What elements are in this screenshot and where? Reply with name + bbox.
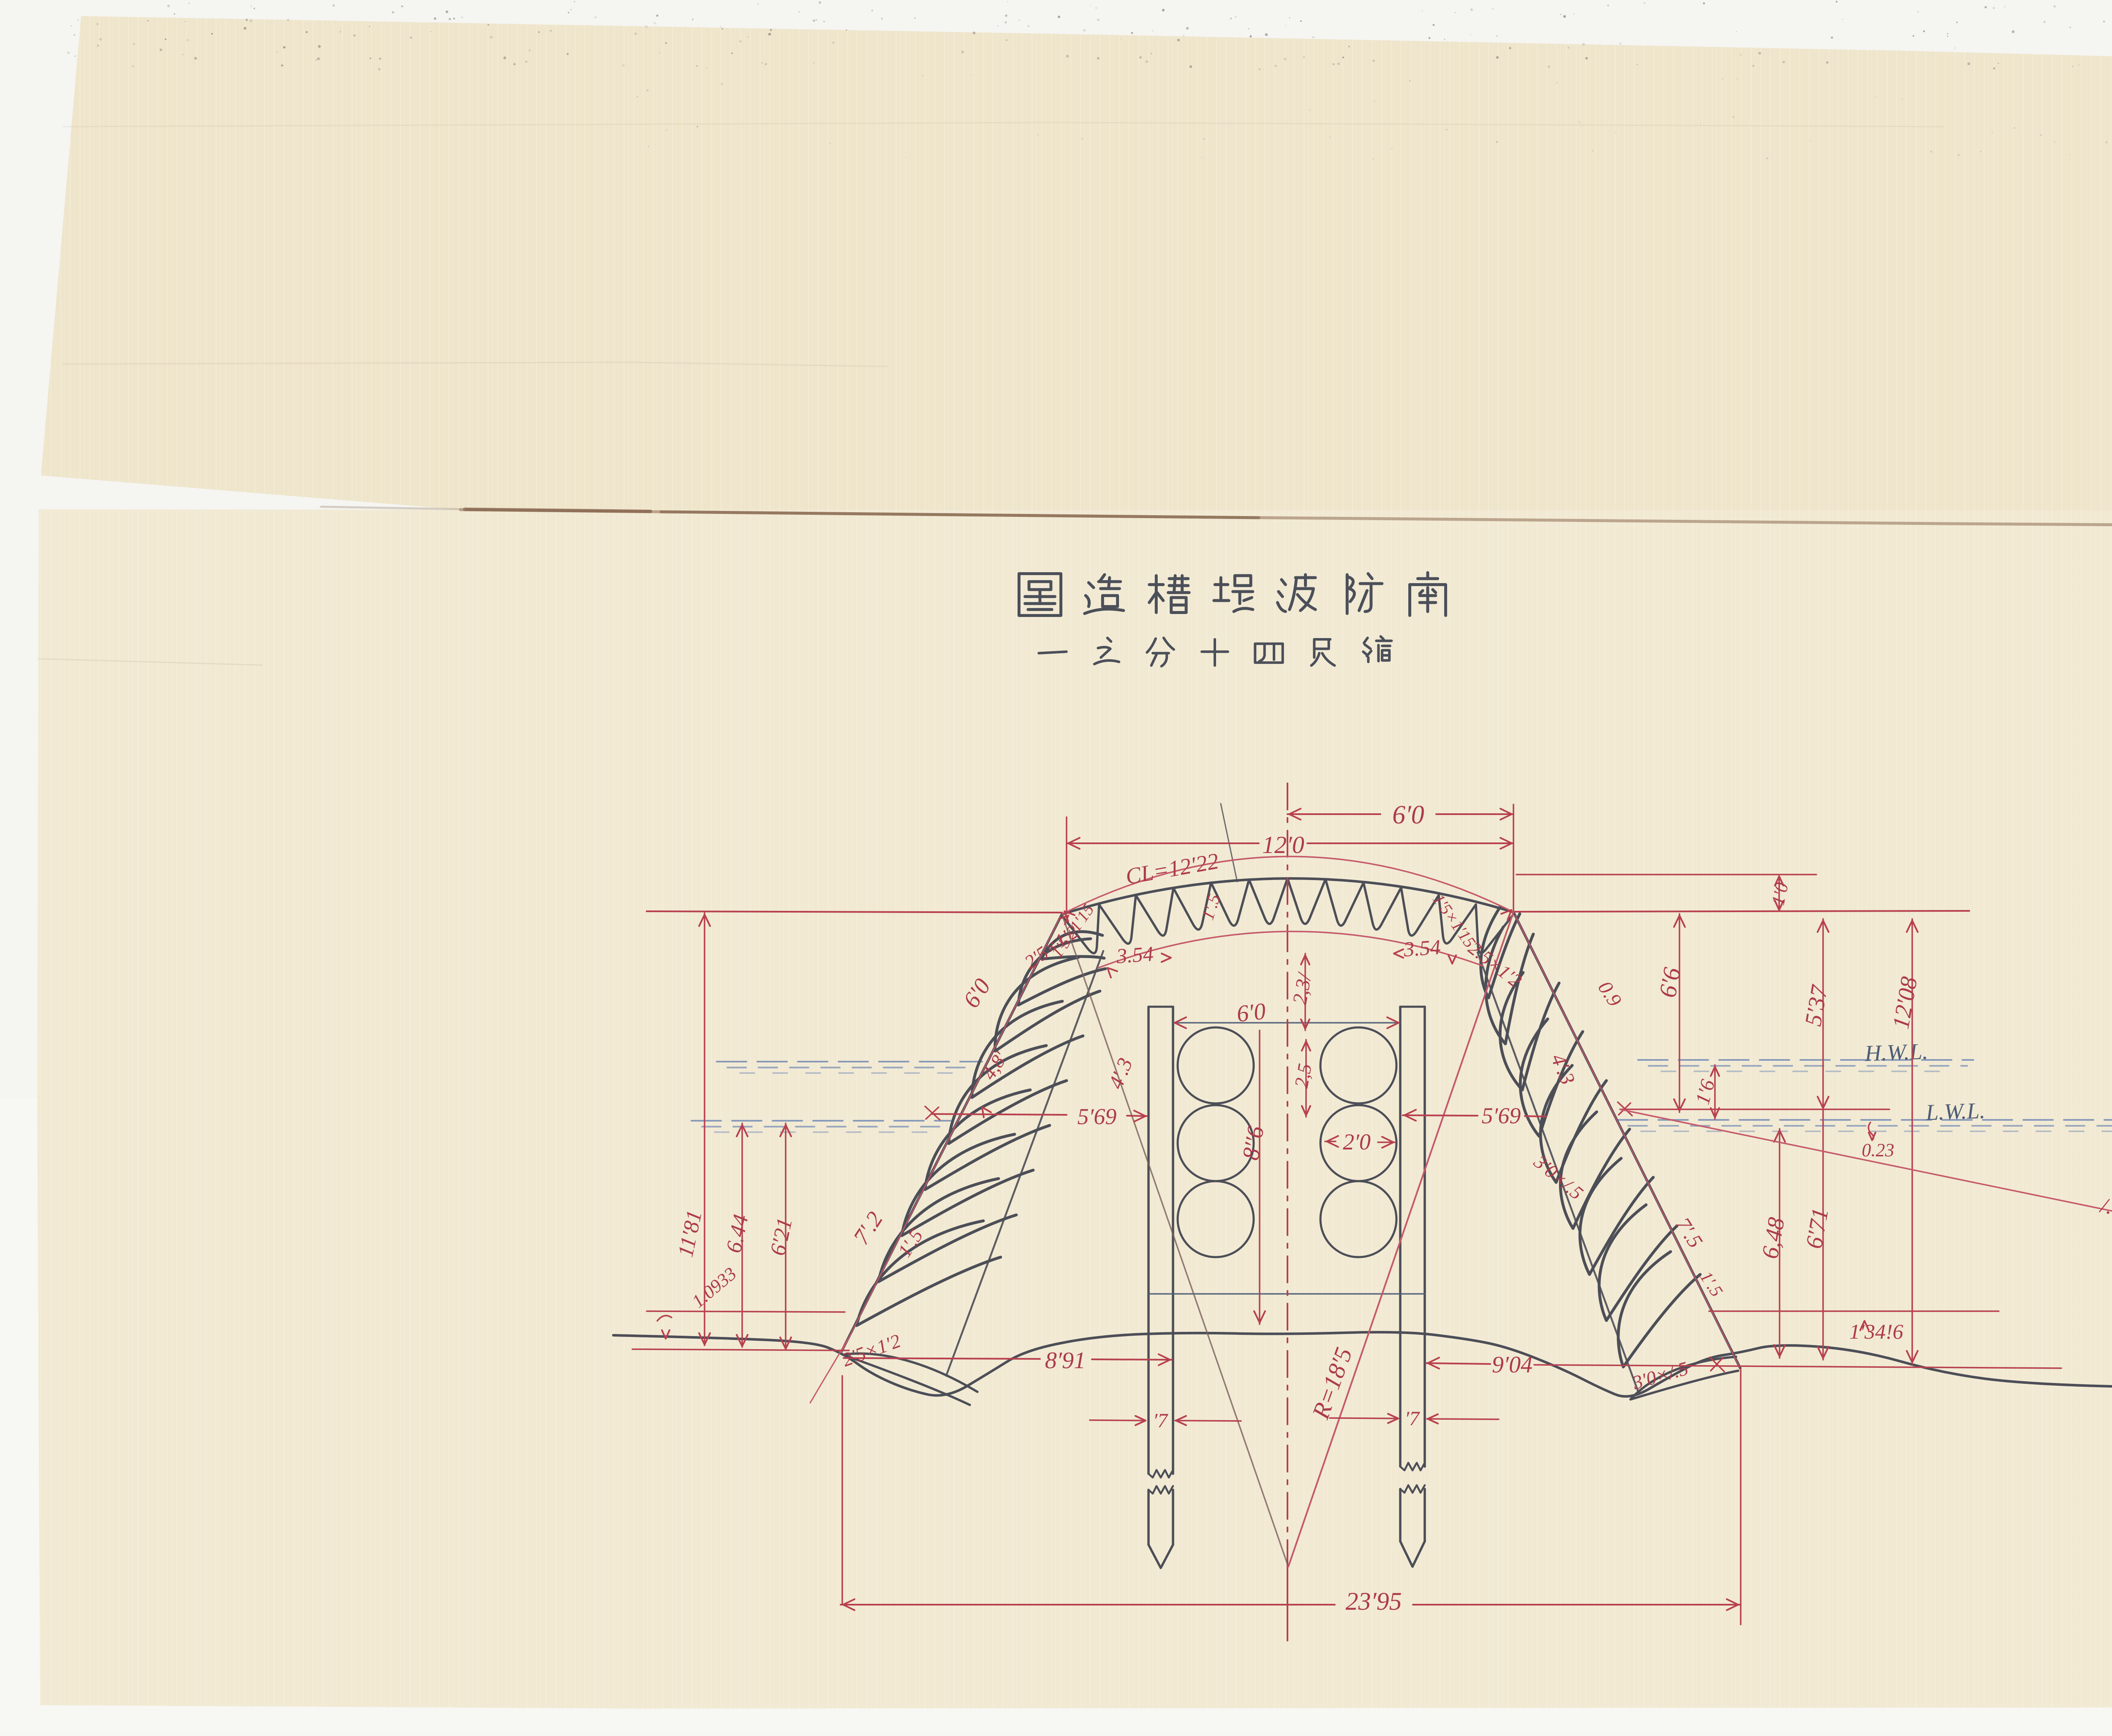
svg-text:3.54: 3.54	[1115, 942, 1154, 968]
svg-text:6′6: 6′6	[1654, 965, 1686, 1000]
svg-text:′7: ′7	[1153, 1410, 1169, 1432]
svg-text:2′0: 2′0	[1343, 1129, 1371, 1155]
svg-text:5′69: 5′69	[1482, 1103, 1521, 1128]
svg-text:0.23: 0.23	[1862, 1140, 1894, 1160]
svg-text:3.54: 3.54	[1402, 935, 1441, 961]
svg-text:9′04: 9′04	[1492, 1352, 1532, 1378]
svg-text:12′0: 12′0	[1262, 831, 1304, 858]
svg-text:2,5: 2,5	[1290, 1062, 1316, 1089]
svg-text:L.W.L.: L.W.L.	[1925, 1098, 1986, 1125]
svg-text:23′95: 23′95	[1345, 1587, 1402, 1615]
svg-text:H.W.L.: H.W.L.	[1864, 1038, 1929, 1066]
svg-text:6′0: 6′0	[1236, 998, 1267, 1027]
svg-text:6′0: 6′0	[1392, 801, 1424, 829]
svg-text:′7: ′7	[1405, 1407, 1421, 1430]
svg-text:8′91: 8′91	[1045, 1348, 1086, 1374]
svg-text:1′34!6: 1′34!6	[1849, 1320, 1903, 1343]
svg-text:5′69: 5′69	[1078, 1104, 1117, 1129]
